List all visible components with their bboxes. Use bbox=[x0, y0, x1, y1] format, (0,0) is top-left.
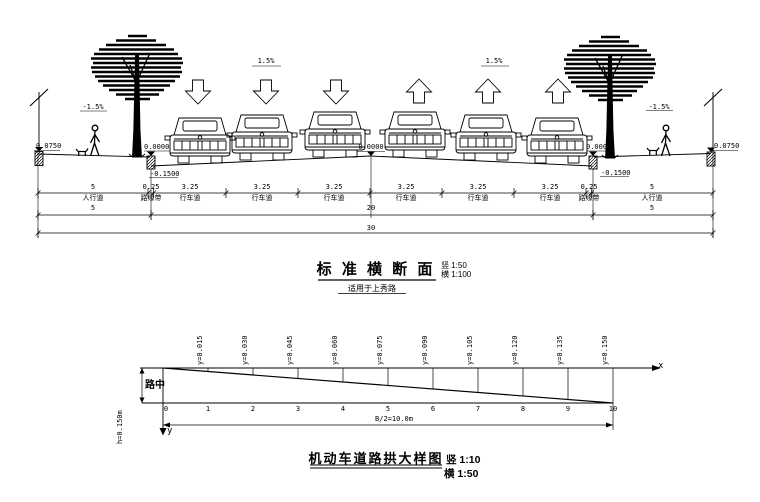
ordinate-label: y=0.135 bbox=[556, 335, 564, 365]
station-number: 0 bbox=[164, 405, 168, 413]
cs-scale-horizontal: 横 1:100 bbox=[441, 270, 471, 279]
y-axis-arrow bbox=[160, 428, 167, 436]
traffic-direction-arrows bbox=[186, 79, 571, 104]
station-number: 4 bbox=[341, 405, 345, 413]
station-number: 2 bbox=[251, 405, 255, 413]
dim-width: 0.25 bbox=[143, 183, 160, 191]
slope-right-sidewalk: -1.5% bbox=[648, 103, 669, 111]
elevation-right-outer: 0.0750 bbox=[714, 142, 739, 150]
dim-label: 行车道 bbox=[252, 195, 273, 203]
half-width-label: B/2=10.0m bbox=[375, 415, 413, 423]
ordinate-label: y=0.075 bbox=[376, 335, 384, 365]
x-axis-label: x bbox=[658, 362, 663, 370]
dim-width: 3.25 bbox=[398, 183, 415, 191]
cross-section-drawing bbox=[30, 36, 738, 294]
dog-right bbox=[647, 148, 659, 156]
elevation-right-gutter: -0.1500 bbox=[601, 169, 631, 177]
ordinate-label: y=0.045 bbox=[286, 335, 294, 365]
station-number: 10 bbox=[609, 405, 617, 413]
dimension-extension-lines bbox=[38, 152, 713, 238]
ordinate-label: y=0.090 bbox=[421, 335, 429, 365]
dim-width: 3.25 bbox=[254, 183, 271, 191]
dim-label: 行车道 bbox=[324, 195, 345, 203]
station-number: 6 bbox=[431, 405, 435, 413]
cross-section-subtitle: 适用于上秀路 bbox=[348, 283, 396, 294]
ordinate-label: y=0.060 bbox=[331, 335, 339, 365]
dim-label: 人行道 bbox=[642, 195, 663, 203]
dimension-rows bbox=[36, 188, 716, 238]
ordinate-label: y=0.030 bbox=[241, 335, 249, 365]
dim-label: 路缘带 bbox=[579, 195, 600, 203]
slope-left-road: 1.5% bbox=[258, 57, 275, 65]
slope-left-sidewalk: -1.5% bbox=[82, 103, 103, 111]
dim-width: 5 bbox=[650, 183, 654, 191]
elevation-left-gutter: -0.1500 bbox=[150, 170, 180, 178]
dim-row2-right: 5 bbox=[650, 204, 654, 212]
cross-section-title: 标 准 横 断 面 bbox=[317, 258, 436, 279]
ordinate-label: y=0.015 bbox=[196, 335, 204, 365]
dim-width: 3.25 bbox=[182, 183, 199, 191]
drawing-linework bbox=[0, 0, 760, 502]
dim-row3-total: 30 bbox=[367, 224, 375, 232]
station-number: 7 bbox=[476, 405, 480, 413]
tree-right bbox=[564, 37, 656, 158]
dim-width: 3.25 bbox=[326, 183, 343, 191]
dim-label: 行车道 bbox=[468, 195, 489, 203]
vehicles bbox=[165, 112, 592, 163]
dim-label: 行车道 bbox=[396, 195, 417, 203]
station-number: 3 bbox=[296, 405, 300, 413]
ordinate-label: y=0.120 bbox=[511, 335, 519, 365]
dim-label: 路缘带 bbox=[141, 195, 162, 203]
dim-width: 0.25 bbox=[581, 183, 598, 191]
crown-height-label: h=0.150m bbox=[116, 410, 124, 444]
station-number: 8 bbox=[521, 405, 525, 413]
arch-detail-title: 机动车道路拱大样图 bbox=[308, 448, 443, 467]
half-width-dimension bbox=[163, 423, 613, 428]
ad-scale-vertical: 竖 1:10 bbox=[446, 454, 480, 466]
dim-width: 5 bbox=[91, 183, 95, 191]
ordinate-label: y=0.150 bbox=[601, 335, 609, 365]
dim-width: 3.25 bbox=[470, 183, 487, 191]
dim-label: 行车道 bbox=[180, 195, 201, 203]
slope-right-road: 1.5% bbox=[486, 57, 503, 65]
dim-label: 人行道 bbox=[83, 195, 104, 203]
dim-row2-center: 20 bbox=[367, 204, 375, 212]
dim-width: 3.25 bbox=[542, 183, 559, 191]
ordinate-label: y=0.105 bbox=[466, 335, 474, 365]
station-number: 9 bbox=[566, 405, 570, 413]
tree-left bbox=[91, 36, 183, 157]
elevation-center: 0.0000 bbox=[358, 143, 383, 151]
pedestrian-right bbox=[662, 125, 671, 156]
road-center-label: 路中 bbox=[145, 380, 158, 393]
cs-scale-vertical: 竖 1:50 bbox=[441, 261, 467, 270]
ad-scale-horizontal: 横 1:50 bbox=[444, 468, 478, 480]
elevation-right-curb: 0.0000 bbox=[586, 143, 611, 151]
road-surface bbox=[151, 156, 592, 166]
elevation-left-curb: 0.0000 bbox=[144, 143, 169, 151]
dim-label: 行车道 bbox=[540, 195, 561, 203]
elevation-left-outer: 0.0750 bbox=[36, 142, 61, 150]
station-number: 1 bbox=[206, 405, 210, 413]
h-dimension bbox=[140, 368, 145, 403]
dim-row2-left: 5 bbox=[91, 204, 95, 212]
station-number: 5 bbox=[386, 405, 390, 413]
drawing-sheet: 0.0750 0.0000 -0.1500 0.0000 0.0000 -0.1… bbox=[0, 0, 760, 502]
pedestrian-left bbox=[91, 125, 100, 156]
y-axis-label: y bbox=[167, 427, 172, 435]
